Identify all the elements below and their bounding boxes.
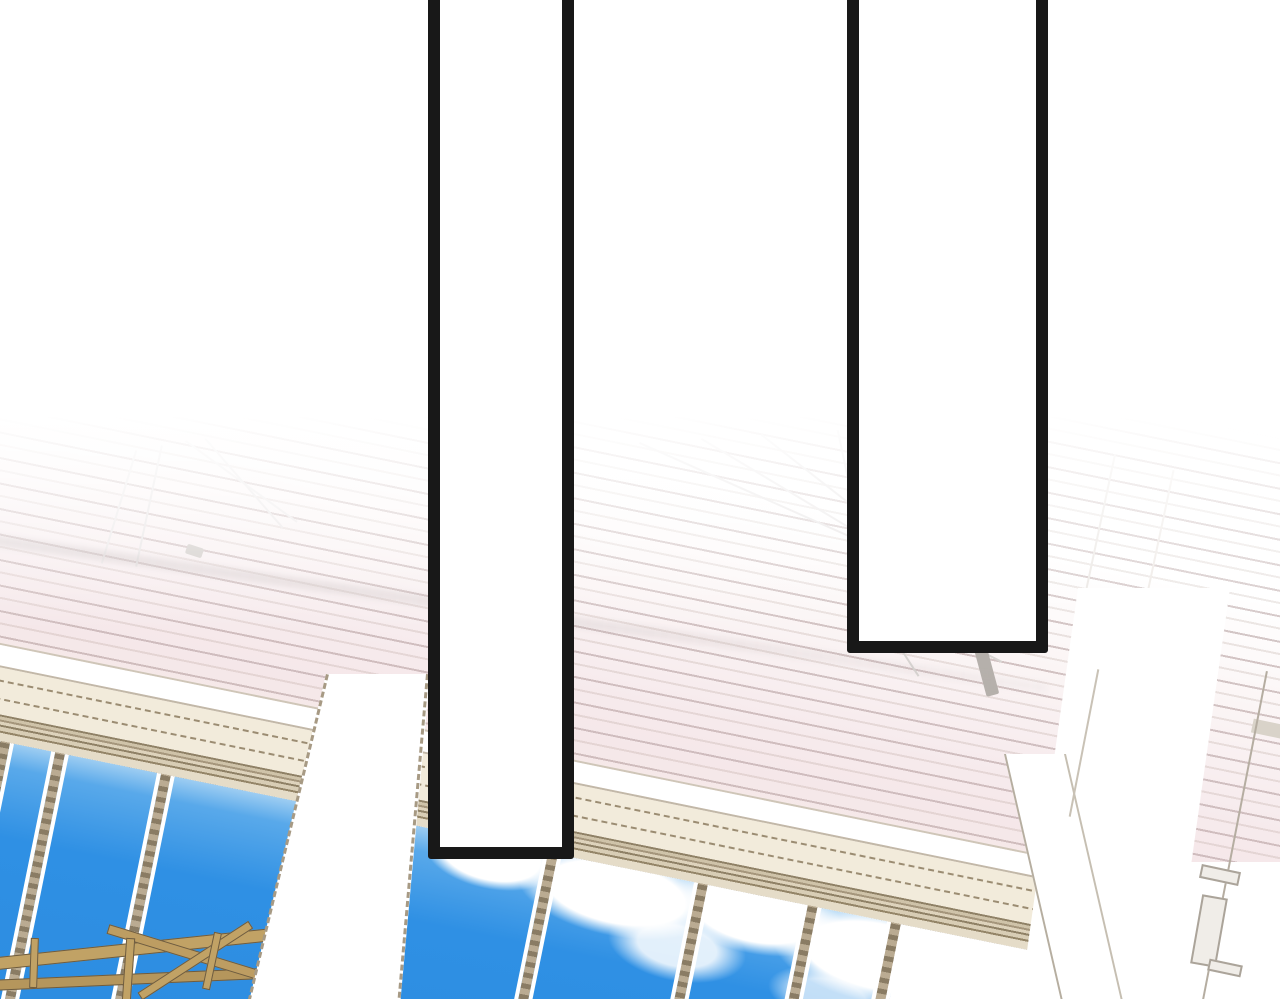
tall-panel-right: [847, 0, 1048, 653]
top-fade: [0, 0, 1280, 630]
comic-page: [0, 0, 1280, 999]
window-mullion: [66, 763, 176, 999]
tall-panel-left: [428, 0, 574, 859]
